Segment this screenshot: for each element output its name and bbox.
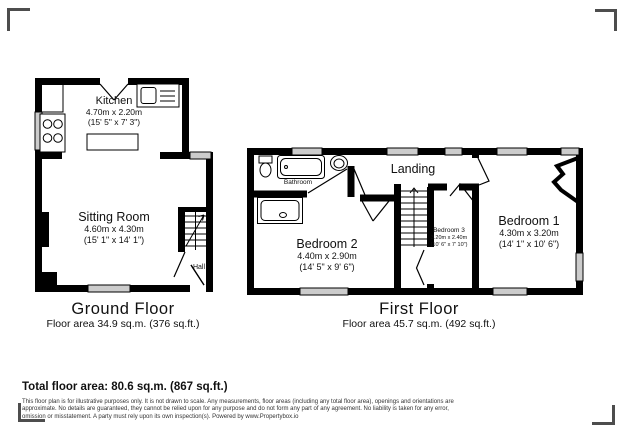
- disclaimer-text: This floor plan is for illustrative purp…: [22, 399, 454, 421]
- room-dim-metric: 4.70m x 2.20m: [86, 107, 142, 117]
- window-bedroom1-right: [576, 253, 583, 281]
- kitchen-island: [87, 134, 138, 150]
- first-floor-title: First Floor: [379, 300, 459, 319]
- room-dim-metric: 3.20m x 2.40m: [431, 235, 468, 242]
- window-bedroom1-bottom: [493, 288, 527, 295]
- room-dim-metric: 4.40m x 2.90m: [296, 251, 357, 262]
- back-door-opening: [100, 77, 128, 86]
- disclaimer-line-3: omission or misstatement. A party must r…: [22, 414, 454, 421]
- room-dim-metric: 4.30m x 3.20m: [498, 228, 559, 239]
- shower-tray-icon: [258, 198, 303, 224]
- window-landing-top: [387, 148, 418, 155]
- room-name: Sitting Room: [78, 210, 150, 224]
- window-bedroom1-top: [497, 148, 527, 155]
- window-sitting-bottom: [88, 285, 130, 292]
- bedroom1-label: Bedroom 1 4.30m x 3.20m (14' 1" x 10' 6"…: [498, 214, 559, 249]
- sitting-room-label: Sitting Room 4.60m x 4.30m (15' 1" x 14'…: [78, 210, 150, 245]
- window-top-right: [561, 148, 579, 155]
- room-name: Landing: [391, 162, 436, 176]
- bedroom3-label: Bedroom 3 3.20m x 2.40m (10' 6" x 7' 10"…: [431, 227, 468, 248]
- first-floor-area: Floor area 45.7 sq.m. (492 sq.ft.): [343, 318, 496, 330]
- wall-block: [35, 272, 57, 292]
- total-floor-area: Total floor area: 80.6 sq.m. (867 sq.ft.…: [22, 381, 228, 393]
- window-top-center: [445, 148, 462, 155]
- bathtub-icon: [278, 156, 325, 179]
- room-dim-imperial: (14' 5" x 9' 6"): [296, 262, 357, 273]
- bedroom2-label: Bedroom 2 4.40m x 2.90m (14' 5" x 9' 6"): [296, 237, 357, 272]
- corner-mark-top-right: [595, 11, 616, 32]
- window-sitting-step: [190, 152, 211, 159]
- room-name: Bedroom 3: [431, 227, 468, 235]
- room-name: Kitchen: [86, 95, 142, 107]
- room-dim-metric: 4.60m x 4.30m: [78, 224, 150, 235]
- floorplan-page: Kitchen 4.70m x 2.20m (15' 5" x 7' 3") S…: [0, 0, 625, 437]
- ground-floor-area: Floor area 34.9 sq.m. (376 sq.ft.): [47, 318, 200, 330]
- room-dim-imperial: (10' 6" x 7' 10"): [431, 242, 468, 249]
- ground-floor-title: Ground Floor: [71, 300, 174, 319]
- room-name: Bathroom: [284, 179, 312, 186]
- hob-icon: [40, 114, 65, 152]
- room-dim-imperial: (15' 5" x 7' 3"): [86, 117, 142, 127]
- chimney-breast: [35, 212, 49, 247]
- kitchen-label: Kitchen 4.70m x 2.20m (15' 5" x 7' 3"): [86, 95, 142, 127]
- sink-unit-icon: [137, 84, 179, 107]
- front-door-opening: [190, 285, 206, 292]
- corner-mark-top-left: [9, 10, 31, 32]
- room-dim-imperial: (14' 1" x 10' 6"): [498, 239, 559, 250]
- bathroom-label: Bathroom: [284, 179, 312, 186]
- corner-mark-bottom-right: [592, 405, 614, 424]
- disclaimer-line-2: approximate. No details are guaranteed, …: [22, 406, 454, 413]
- room-name: Bedroom 1: [498, 214, 559, 228]
- room-name: Hall: [193, 264, 205, 271]
- toilet-icon: [259, 156, 272, 177]
- landing-label: Landing: [391, 162, 436, 176]
- window-bedroom2-bottom: [300, 288, 348, 295]
- basin-icon: [331, 156, 348, 171]
- window-bathroom-top: [292, 148, 322, 155]
- disclaimer-line-1: This floor plan is for illustrative purp…: [22, 399, 454, 406]
- room-name: Bedroom 2: [296, 237, 357, 251]
- hall-label: Hall: [193, 264, 205, 271]
- room-dim-imperial: (15' 1" x 14' 1"): [78, 235, 150, 246]
